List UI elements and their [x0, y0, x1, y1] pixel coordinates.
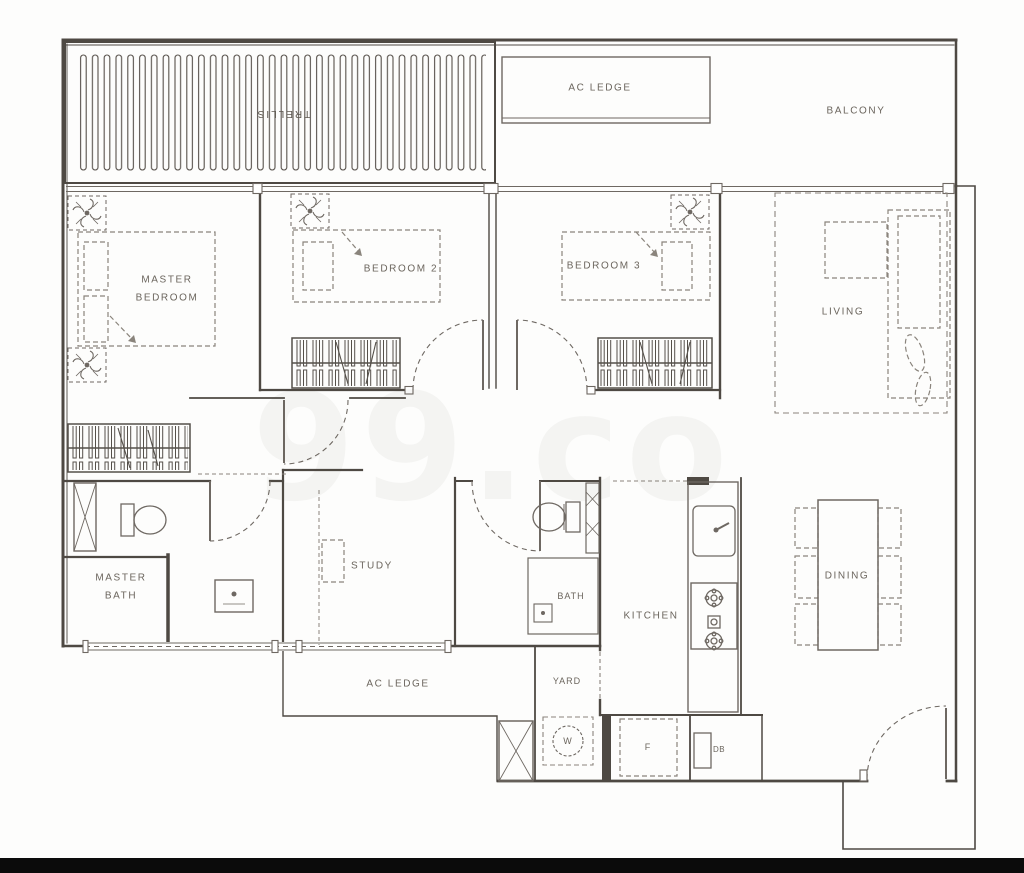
room-label-trellis: TRELLIS: [256, 104, 311, 122]
room-label-yard: YARD: [553, 674, 581, 690]
label-db: DB: [713, 743, 725, 757]
room-label-study: STUDY: [351, 557, 393, 575]
floor-plan-page: 99.co TRELLIS AC LEDGE BALCONY MASTER BE…: [0, 0, 1024, 873]
ac-unit: [499, 721, 533, 781]
room-label-ac-ledge-top: AC LEDGE: [568, 79, 631, 97]
room-label-bath: BATH: [557, 589, 584, 605]
master-bath-basin: [215, 580, 253, 612]
bottom-bar: [0, 858, 1024, 873]
label-fridge: F: [645, 740, 652, 756]
label-washer: W: [563, 734, 573, 750]
room-label-living: LIVING: [822, 303, 864, 321]
room-label-ac-ledge-bottom: AC LEDGE: [366, 675, 429, 693]
kitchen-hob: [691, 583, 737, 650]
db-box: [694, 733, 711, 768]
room-label-master-bedroom: MASTER BEDROOM: [136, 272, 199, 307]
watermark: 99.co: [252, 362, 712, 534]
fan-icon: [68, 348, 106, 382]
fan-icon: [671, 195, 709, 229]
master-bath-toilet: [121, 504, 166, 536]
bath-basin: [534, 604, 552, 622]
room-label-bedroom-3: BEDROOM 3: [567, 257, 641, 275]
room-label-master-bath: MASTER BATH: [95, 570, 146, 605]
master-bath-shower-screen: [74, 483, 96, 551]
room-label-bedroom-2: BEDROOM 2: [364, 260, 438, 278]
fan-icon: [291, 194, 329, 228]
room-label-balcony: BALCONY: [827, 102, 886, 120]
room-label-kitchen: KITCHEN: [623, 607, 678, 625]
fan-icon: [68, 196, 106, 230]
room-label-dining: DINING: [825, 567, 870, 585]
